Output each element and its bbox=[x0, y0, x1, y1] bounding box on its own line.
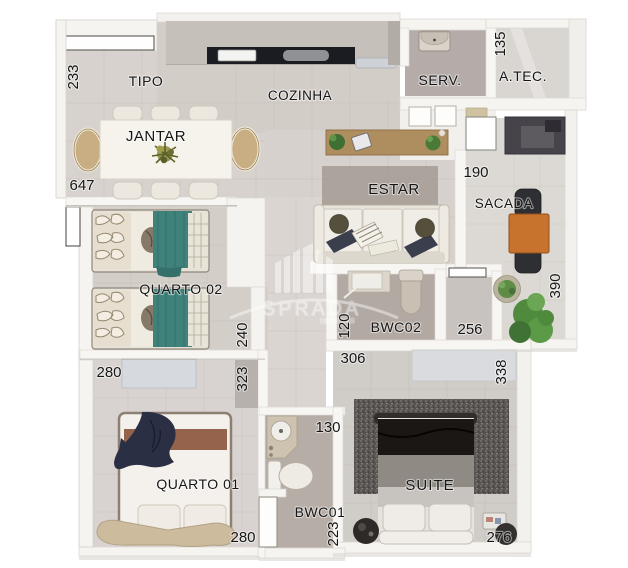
svg-text:ESTAR: ESTAR bbox=[368, 181, 419, 198]
svg-text:120: 120 bbox=[336, 313, 353, 338]
svg-text:276: 276 bbox=[486, 529, 511, 546]
svg-text:TIPO: TIPO bbox=[129, 73, 164, 89]
svg-text:QUARTO 01: QUARTO 01 bbox=[156, 476, 239, 492]
svg-text:233: 233 bbox=[65, 64, 82, 89]
svg-text:130: 130 bbox=[315, 419, 340, 436]
svg-text:280: 280 bbox=[230, 529, 255, 546]
svg-text:QUARTO 02: QUARTO 02 bbox=[139, 281, 222, 297]
svg-text:BWC01: BWC01 bbox=[295, 504, 346, 520]
svg-text:190: 190 bbox=[463, 164, 488, 181]
svg-text:240: 240 bbox=[234, 322, 251, 347]
svg-text:390: 390 bbox=[547, 273, 564, 298]
svg-text:338: 338 bbox=[493, 359, 510, 384]
svg-text:SERV.: SERV. bbox=[419, 72, 462, 88]
svg-text:256: 256 bbox=[457, 321, 482, 338]
svg-text:647: 647 bbox=[69, 177, 94, 194]
svg-text:223: 223 bbox=[325, 521, 342, 546]
svg-text:COZINHA: COZINHA bbox=[268, 88, 332, 103]
svg-text:SUITE: SUITE bbox=[405, 477, 454, 494]
svg-text:BWC02: BWC02 bbox=[371, 319, 422, 335]
svg-text:A.TEC.: A.TEC. bbox=[499, 68, 547, 84]
svg-text:323: 323 bbox=[234, 366, 251, 391]
svg-text:SACADA: SACADA bbox=[475, 196, 534, 211]
svg-text:306: 306 bbox=[340, 350, 365, 367]
svg-text:JANTAR: JANTAR bbox=[126, 128, 186, 145]
svg-text:135: 135 bbox=[492, 31, 509, 56]
svg-text:280: 280 bbox=[96, 364, 121, 381]
